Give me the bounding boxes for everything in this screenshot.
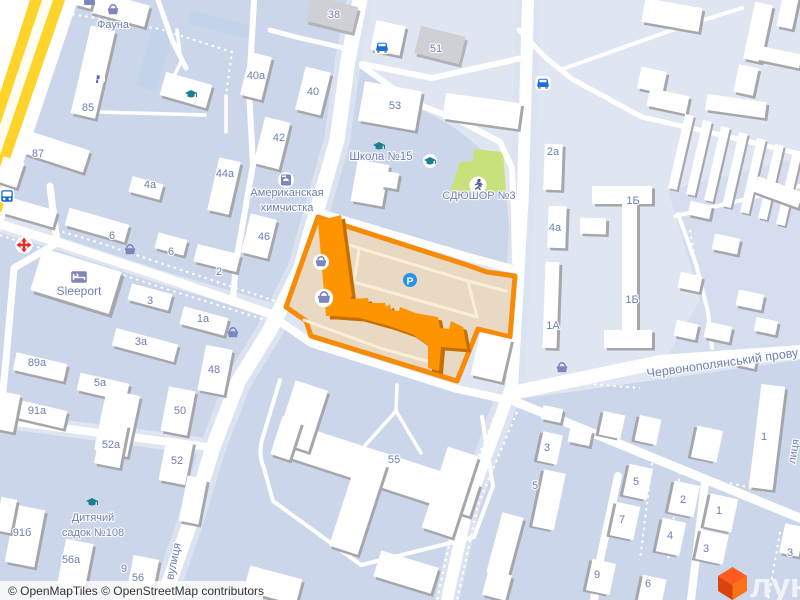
svg-text:1Б: 1Б [626, 195, 639, 207]
svg-text:44a: 44a [216, 168, 235, 180]
svg-text:1: 1 [716, 505, 722, 517]
svg-text:5a: 5a [94, 377, 107, 389]
svg-text:9: 9 [121, 563, 127, 575]
svg-text:6: 6 [168, 246, 174, 258]
svg-text:40: 40 [307, 86, 319, 98]
svg-text:1: 1 [761, 431, 767, 443]
svg-text:P: P [406, 276, 413, 288]
svg-text:4: 4 [667, 530, 673, 542]
svg-text:5: 5 [633, 476, 639, 488]
svg-text:51: 51 [430, 43, 442, 55]
svg-text:Дитячий: Дитячий [72, 512, 115, 524]
svg-text:химчистка: химчистка [261, 202, 315, 214]
svg-text:55: 55 [388, 454, 400, 466]
svg-text:52: 52 [171, 455, 183, 467]
svg-text:3: 3 [703, 543, 709, 555]
svg-text:3: 3 [544, 442, 550, 454]
svg-text:Американская: Американская [250, 187, 323, 199]
svg-text:6: 6 [109, 230, 115, 242]
svg-text:42: 42 [273, 132, 285, 144]
svg-text:7: 7 [619, 514, 625, 526]
svg-text:1Б: 1Б [625, 294, 638, 306]
svg-text:52a: 52a [102, 439, 121, 451]
svg-text:Sleeport: Sleeport [57, 284, 102, 298]
svg-text:Фауна: Фауна [97, 19, 130, 31]
svg-text:5: 5 [532, 480, 538, 492]
svg-text:СДЮШОР №3: СДЮШОР №3 [442, 190, 515, 202]
svg-text:3: 3 [787, 547, 793, 559]
svg-text:40a: 40a [247, 70, 266, 82]
svg-text:6: 6 [645, 578, 651, 590]
svg-text:2: 2 [216, 266, 222, 278]
svg-text:89a: 89a [28, 357, 47, 369]
svg-text:91a: 91a [28, 405, 47, 417]
svg-text:3a: 3a [135, 336, 148, 348]
svg-text:3: 3 [147, 295, 153, 307]
svg-text:53: 53 [389, 100, 401, 112]
svg-text:56a: 56a [62, 554, 81, 566]
svg-text:87: 87 [32, 148, 44, 160]
svg-text:1a: 1a [197, 313, 210, 325]
svg-text:Школа №15: Школа №15 [349, 151, 412, 163]
svg-text:38: 38 [328, 9, 340, 21]
svg-text:2a: 2a [547, 146, 560, 158]
svg-text:© OpenMapTiles © OpenStreetMap: © OpenMapTiles © OpenStreetMap contribut… [8, 584, 264, 598]
svg-text:4a: 4a [144, 179, 157, 191]
svg-text:50: 50 [174, 405, 186, 417]
svg-text:46: 46 [258, 231, 270, 243]
svg-text:4a: 4a [549, 222, 562, 234]
svg-text:48: 48 [208, 364, 220, 376]
svg-text:1A: 1A [546, 320, 560, 332]
svg-text:2: 2 [680, 494, 686, 506]
svg-text:лун: лун [750, 567, 800, 600]
svg-text:91б: 91б [13, 527, 32, 539]
svg-text:садок №108: садок №108 [62, 527, 124, 539]
svg-text:9: 9 [594, 569, 600, 581]
svg-text:85: 85 [82, 102, 94, 114]
